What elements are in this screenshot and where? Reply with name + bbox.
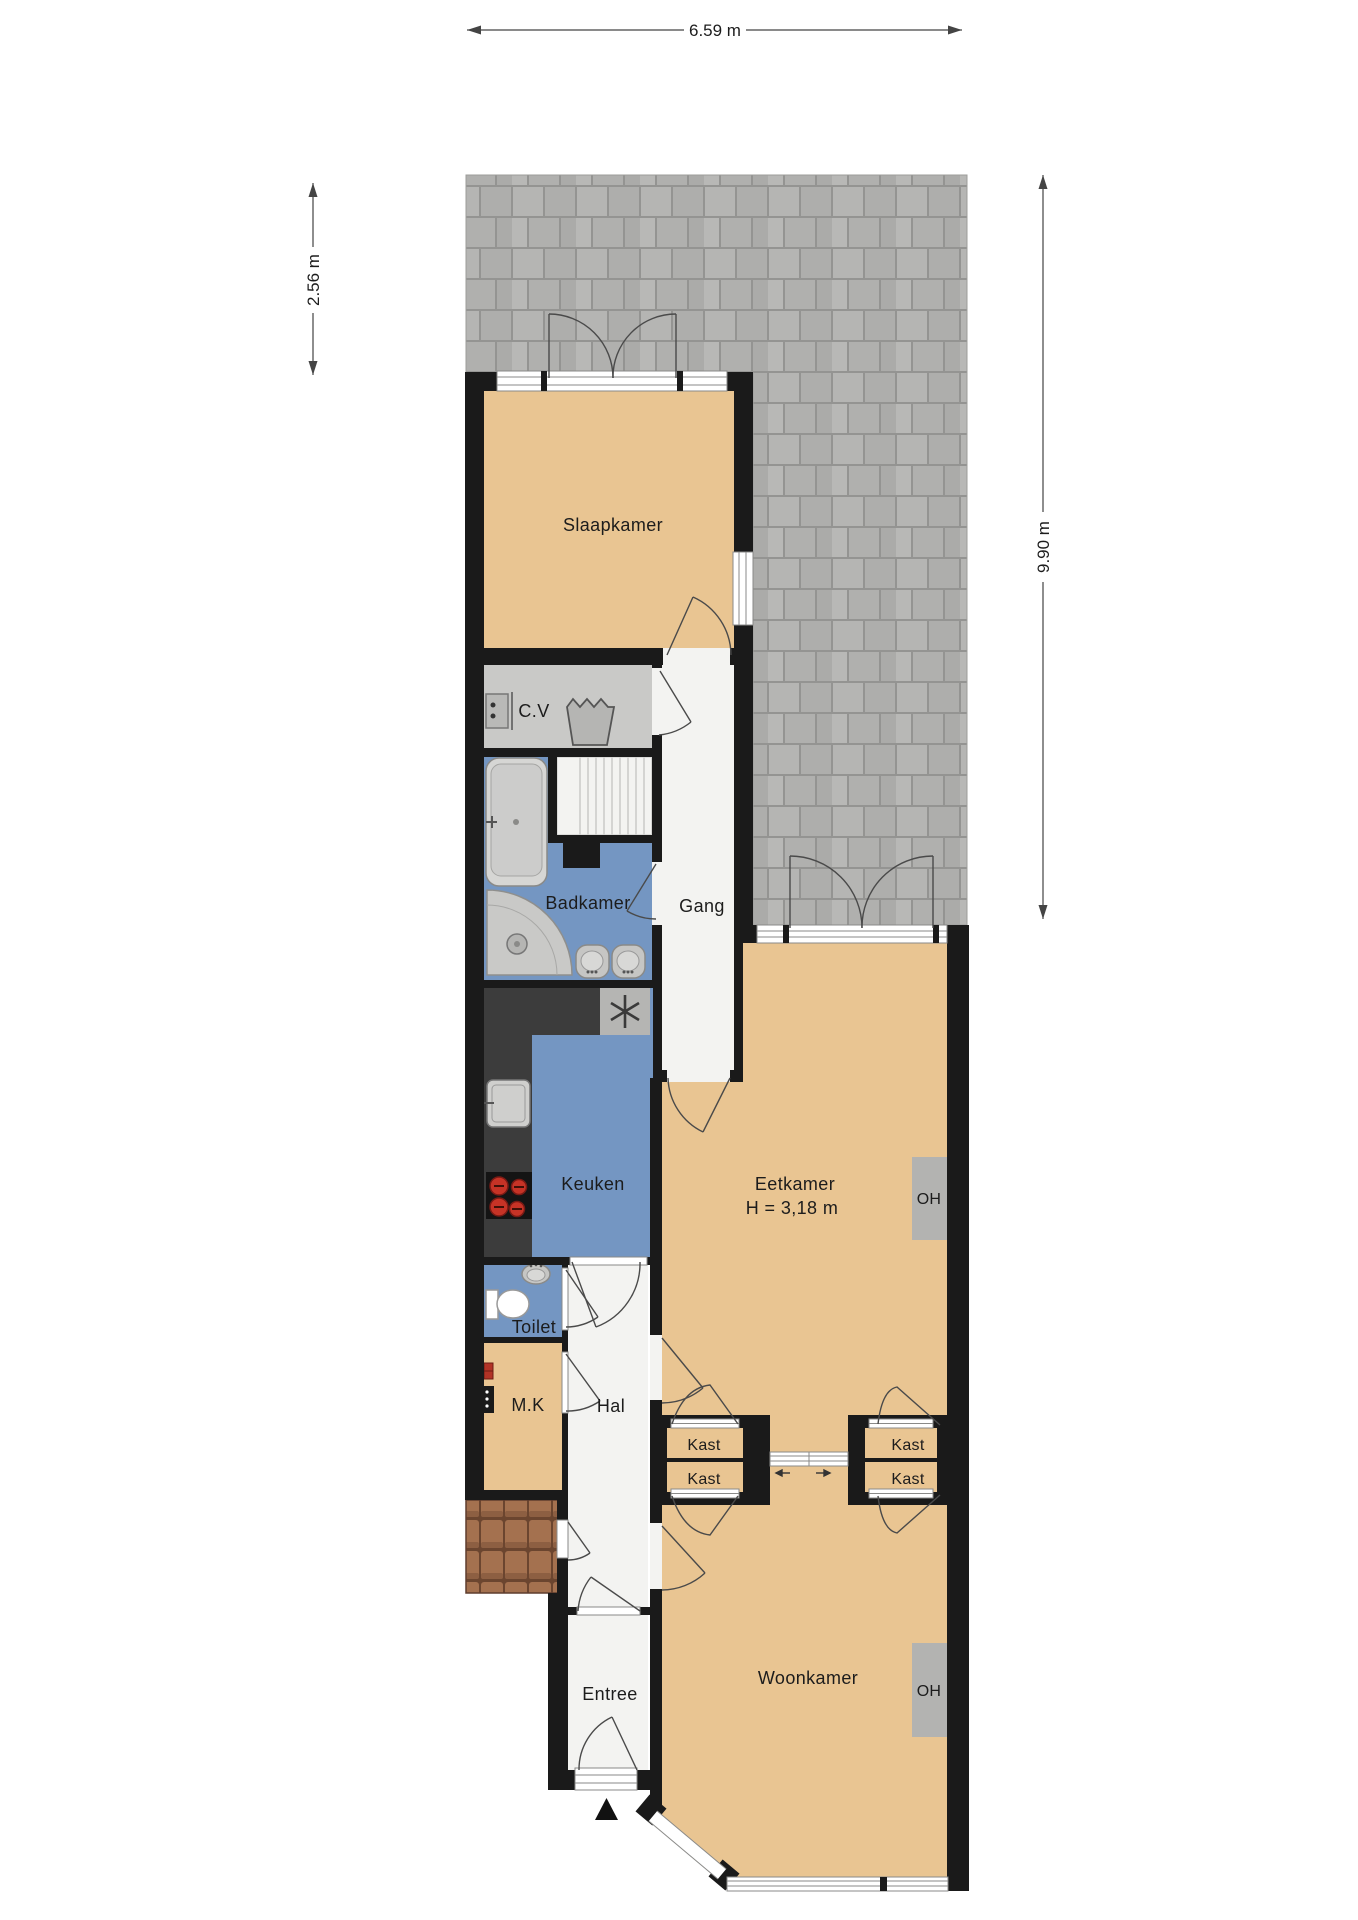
window-slaapkamer-top [497,371,727,391]
kast-label-4: Kast [891,1471,924,1488]
dimension-left: 2.56 m [301,183,325,375]
toilet-icon [486,1290,529,1319]
staircase [557,757,660,835]
kast-label-3: Kast [891,1437,924,1454]
kitchen-sink-icon [484,1080,530,1127]
dimension-right: 9.90 m [1031,175,1055,919]
meter-box-icon [484,1363,493,1379]
doorway-badkamer [652,862,662,925]
room-label-woonkamer: Woonkamer [758,1668,858,1688]
room-label-cv: C.V [518,701,549,721]
doorway-hal-eetkamer [650,1335,662,1400]
bathtub-icon [486,758,547,886]
roof-awning [466,1500,563,1593]
window-slaapkamer-side [733,552,753,625]
entrance-arrow-icon [595,1798,618,1820]
window-eetkamer [757,925,947,943]
doorway-gang-eetkamer [667,1070,730,1082]
room-hal [568,1265,648,1607]
doorway-toilet [562,1268,568,1330]
doorway-hal-woonkamer [650,1523,662,1589]
dimension-top: 6.59 m [467,19,962,41]
doorway-entree [577,1607,640,1615]
stove-icon [486,1172,532,1219]
laundry-basket-icon [567,699,614,745]
doorway-slaapkamer [663,648,730,665]
room-label-badkamer: Badkamer [545,893,630,913]
room-label-slaapkamer: Slaapkamer [563,515,663,535]
doorway-mk [562,1352,568,1413]
kast-label-2: Kast [687,1471,720,1488]
room-label-entree: Entree [582,1684,637,1704]
side-door [557,1520,568,1558]
dimension-right-label: 9.90 m [1034,521,1053,573]
doorway-keuken [570,1257,647,1265]
room-mk [484,1343,562,1490]
room-gang [662,665,734,1070]
oh-label-eetkamer: OH [917,1191,942,1208]
kast-label-1: Kast [687,1437,720,1454]
window-woonkamer-bottom [727,1877,948,1891]
doorway-cv [652,668,662,735]
room-label-eetkamer: Eetkamer [755,1174,835,1194]
dimension-top-label: 6.59 m [689,21,741,40]
floorplan-page: Slaapkamer C.V Badkamer Gang Keuken Eetk… [0,0,1358,1920]
dimension-left-label: 2.56 m [304,254,323,306]
room-label-keuken: Keuken [561,1174,624,1194]
floor-plan-svg: Slaapkamer C.V Badkamer Gang Keuken Eetk… [0,0,1358,1920]
oh-label-woonkamer: OH [917,1683,942,1700]
hand-basin-icon [522,1264,550,1284]
cv-boiler-icon [486,692,512,730]
front-door [575,1768,637,1790]
room-label-gang: Gang [679,896,725,916]
room-label-eetkamer-height: H = 3,18 m [746,1198,839,1218]
room-label-toilet: Toilet [512,1317,556,1337]
room-label-mk: M.K [511,1395,544,1415]
room-label-hal: Hal [597,1396,625,1416]
